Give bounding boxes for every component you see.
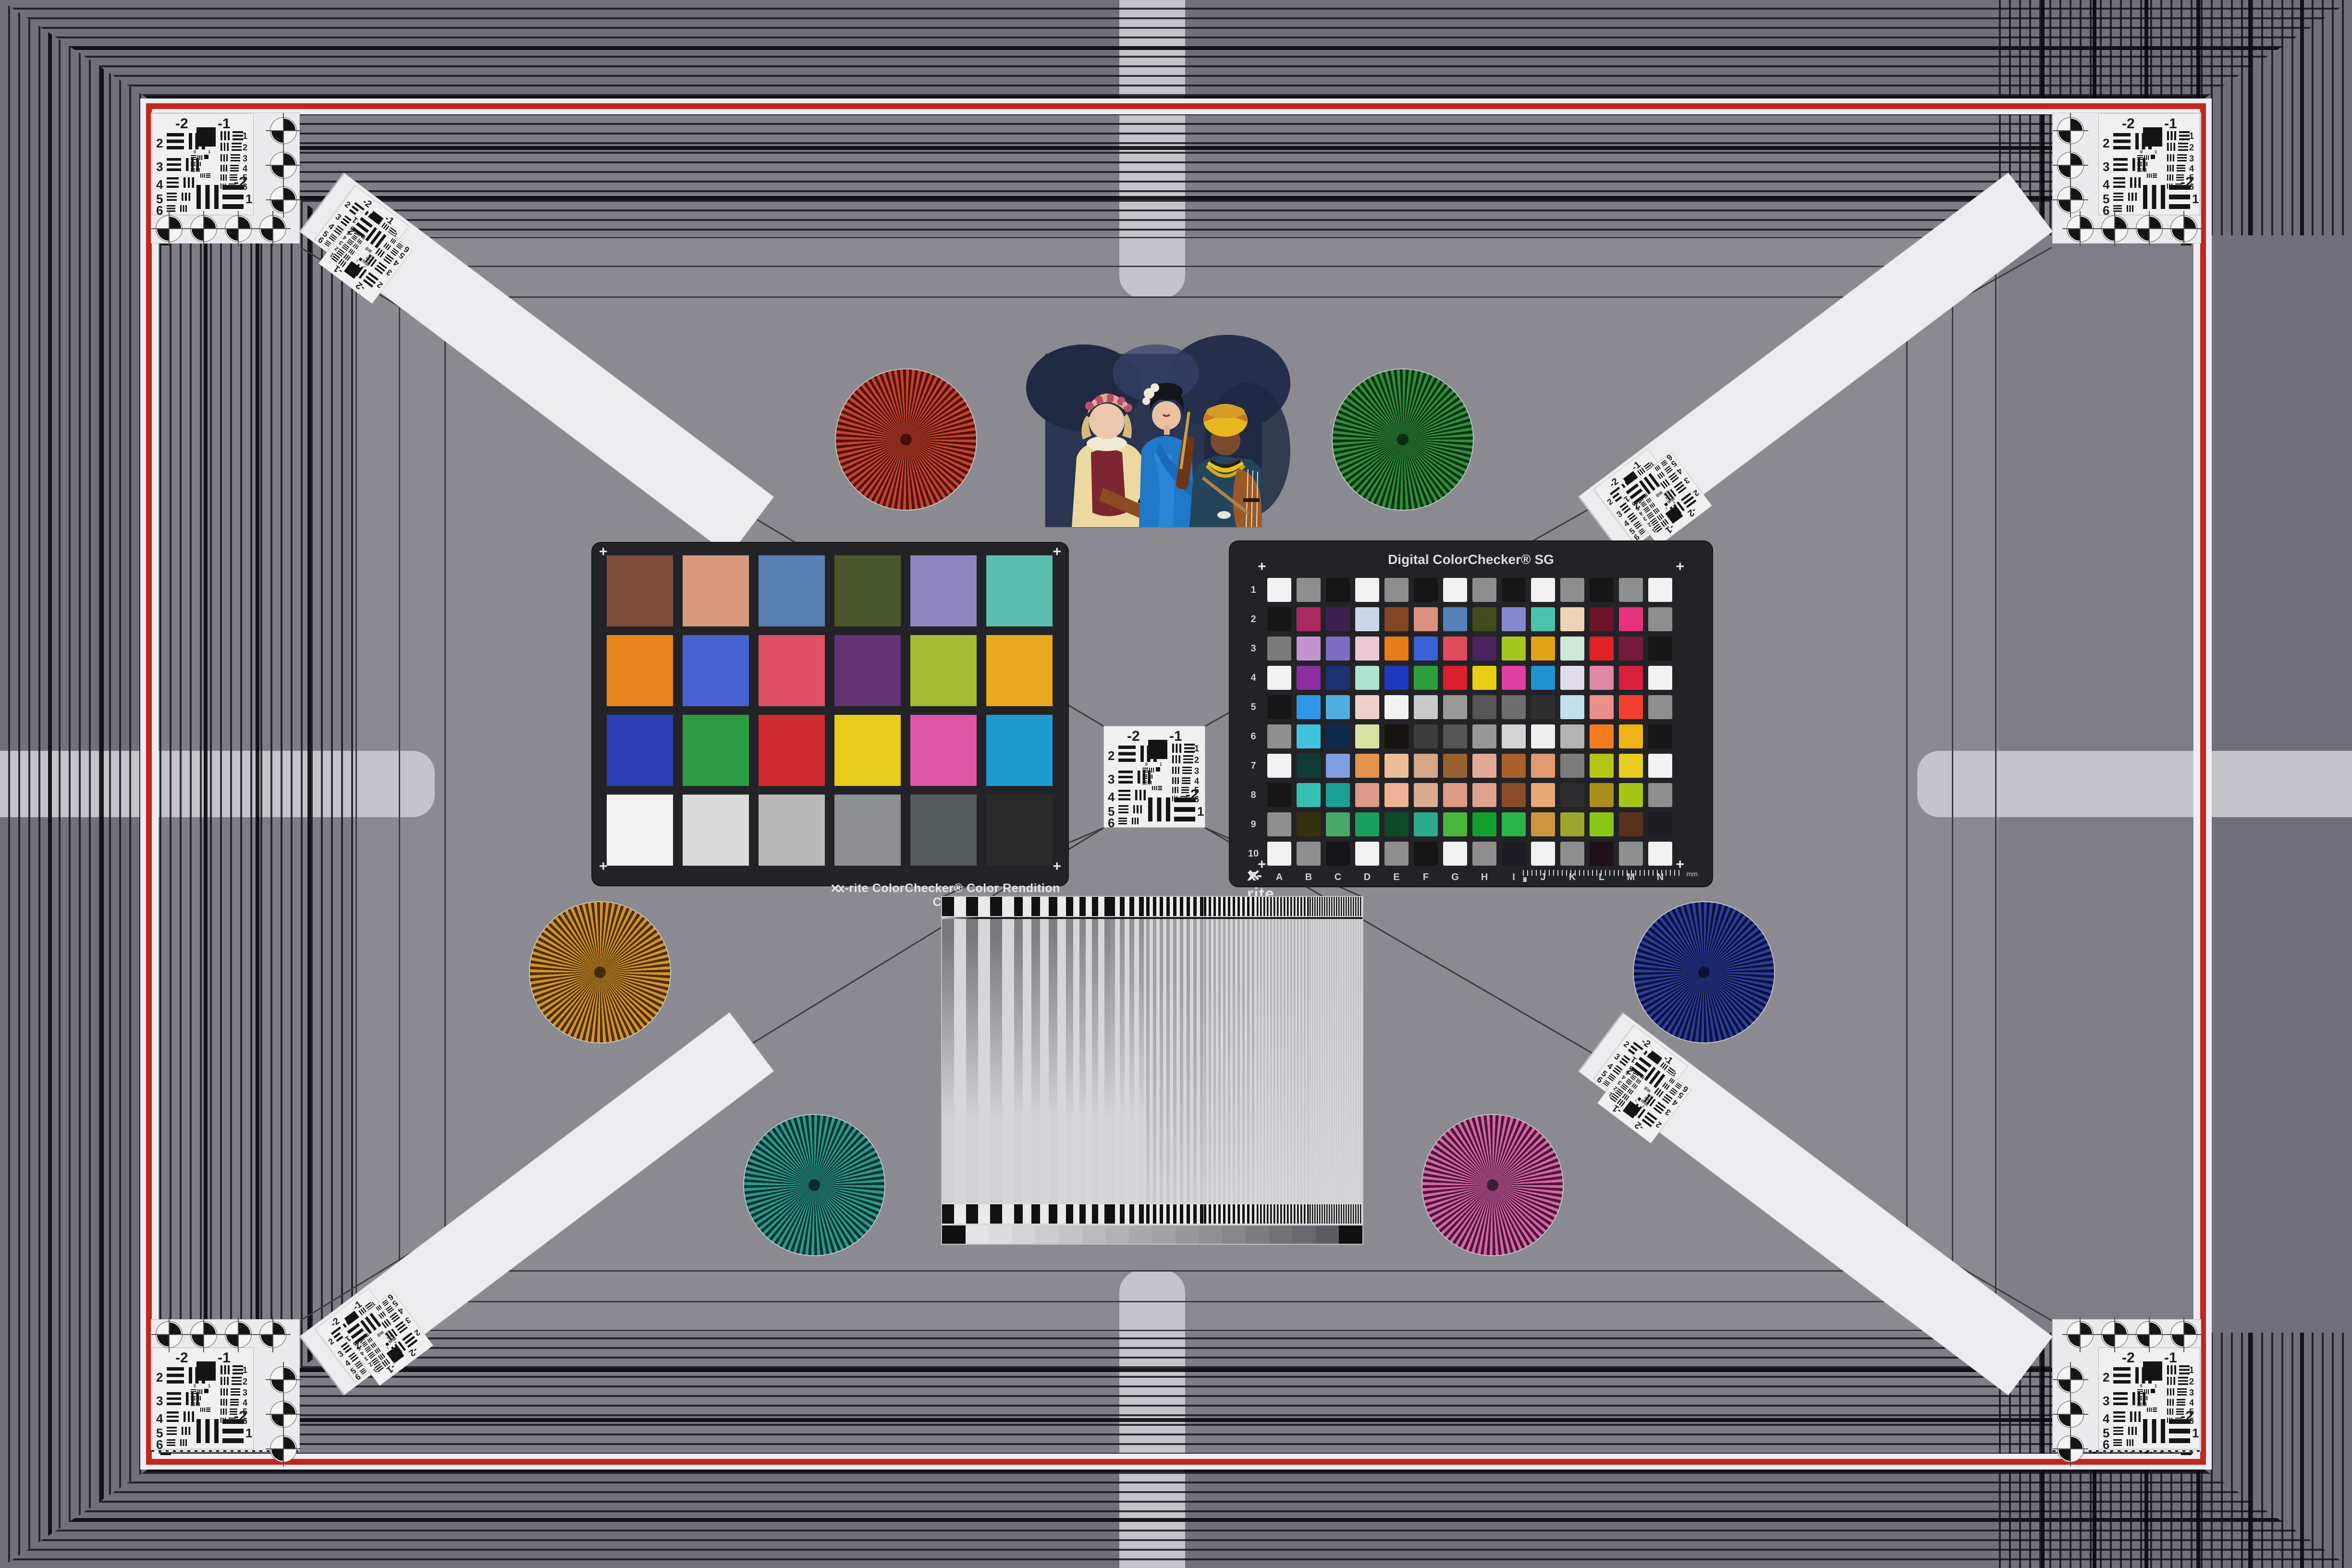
registration-cross: + — [1053, 550, 1061, 554]
sg-ruler-unit: mm — [1687, 870, 1698, 878]
bar-group — [196, 1396, 201, 1400]
bar-group — [2167, 1377, 2175, 1385]
quarter-circle-mark — [2058, 1368, 2082, 1392]
target-number: -2 — [175, 1350, 188, 1366]
bar-group — [1660, 479, 1670, 489]
target-number: -2 — [2122, 116, 2135, 132]
grayscale-step — [1269, 1225, 1293, 1244]
bar-group — [2177, 154, 2186, 161]
bar-group — [1133, 805, 1141, 813]
quarter-circle-mark — [271, 1368, 295, 1392]
color-patch — [986, 555, 1053, 626]
quarter-circle-mark — [271, 119, 295, 143]
color-patch — [1472, 842, 1496, 866]
target-number: 6 — [2103, 1437, 2109, 1452]
bar-group — [206, 173, 210, 178]
sg-ruler-number: 6 — [1523, 876, 1527, 884]
bar-group — [2127, 205, 2133, 212]
color-patch — [1648, 783, 1672, 807]
bar-group — [1653, 508, 1660, 514]
target-number: 4 — [1194, 776, 1199, 786]
bar-group — [196, 162, 201, 166]
color-patch — [834, 715, 901, 786]
quarter-circle-mark — [226, 217, 250, 241]
color-patch — [986, 715, 1053, 786]
color-patch — [1414, 724, 1438, 748]
color-patch — [759, 795, 825, 866]
bar-group — [2167, 165, 2174, 171]
registration-cross: + — [599, 550, 608, 554]
color-patch — [1267, 637, 1291, 661]
bar-group — [191, 162, 196, 166]
color-patch — [986, 635, 1053, 706]
color-patch — [1355, 578, 1379, 602]
color-patch — [1384, 842, 1409, 866]
target-number: 2 — [2103, 1370, 2109, 1385]
bar-group — [1118, 746, 1136, 762]
target-number: -2 — [2180, 174, 2193, 191]
bar-group — [197, 155, 202, 160]
frequency-bar-segment — [1204, 1204, 1257, 1224]
color-patch — [1326, 842, 1350, 866]
color-patch — [1355, 842, 1379, 866]
bar-group — [1135, 790, 1146, 800]
color-patch — [1443, 666, 1467, 690]
target-number: 0 — [194, 149, 196, 154]
bar-group — [1662, 1094, 1673, 1104]
target-number: 0 — [194, 1384, 196, 1388]
color-patch — [759, 635, 825, 706]
siemens-star-green — [1333, 369, 1473, 510]
color-patch — [834, 635, 901, 706]
target-number: 2 — [1108, 748, 1115, 763]
bar-group — [191, 1402, 195, 1406]
bar-group — [184, 1411, 194, 1422]
target-number: 4 — [2189, 1398, 2194, 1408]
color-patch — [1590, 637, 1614, 661]
quarter-circle-mark — [271, 188, 295, 212]
grayscale-step — [1316, 1225, 1339, 1244]
bar-group — [1620, 1083, 1628, 1091]
target-number: -1 — [2164, 1350, 2177, 1366]
target-number: -2 — [234, 1409, 247, 1425]
color-patch — [1384, 783, 1409, 807]
color-patch — [1355, 812, 1379, 836]
color-patch — [1502, 754, 1526, 778]
bar-group — [2113, 1367, 2131, 1384]
bar-group — [378, 1353, 386, 1360]
target-number: 1 — [243, 1365, 247, 1375]
bar-group — [1148, 797, 1170, 821]
test-chart-scene: -2-123456123456-2101-2-123456123456-2101… — [0, 0, 2352, 1568]
color-patch — [1384, 812, 1409, 836]
color-patch — [910, 795, 977, 866]
bar-group — [1661, 460, 1668, 467]
sg-row-label: 8 — [1246, 790, 1261, 801]
target-number: -1 — [1169, 728, 1182, 745]
color-patch — [1472, 812, 1496, 836]
bar-group — [167, 1411, 179, 1422]
bar-group — [1152, 786, 1157, 790]
color-patch — [1355, 724, 1379, 748]
target-number: 3 — [2189, 1388, 2194, 1398]
target-number: 4 — [1108, 790, 1115, 805]
bar-group — [2113, 1392, 2128, 1405]
bar-group — [390, 238, 396, 244]
color-patch — [1590, 812, 1614, 836]
siemens-star-orange — [530, 902, 670, 1042]
color-patch — [1502, 637, 1526, 661]
bar-group — [2143, 168, 2146, 172]
target-number: 6 — [2103, 203, 2109, 218]
color-patch — [1443, 578, 1467, 602]
color-patch — [1648, 724, 1672, 748]
color-patch — [1267, 724, 1291, 748]
bar-group — [1132, 818, 1139, 824]
target-number: 3 — [243, 154, 247, 164]
bar-group — [220, 154, 228, 161]
corner-usaf-slot: -2-123456123456-2101 — [152, 114, 253, 215]
target-number: -2 — [1186, 787, 1199, 803]
color-patch — [1502, 783, 1526, 807]
bar-group — [1172, 767, 1179, 774]
black-square — [2151, 155, 2155, 159]
color-patch — [1590, 842, 1614, 866]
bar-group — [2130, 177, 2141, 188]
bar-group — [1118, 771, 1133, 784]
target-number: 4 — [2103, 177, 2109, 192]
bar-group — [2153, 1408, 2157, 1412]
bar-group — [374, 1347, 381, 1354]
grayscale-step — [1082, 1225, 1106, 1244]
bar-group — [381, 1319, 391, 1328]
bar-group — [367, 1337, 373, 1343]
quarter-circle-mark — [2103, 217, 2127, 241]
target-number: 2 — [243, 143, 247, 153]
color-patch — [1531, 754, 1555, 778]
color-patch — [1560, 695, 1584, 719]
quarter-circle-mark — [271, 153, 295, 177]
color-patch — [1414, 695, 1438, 719]
color-patch — [1355, 695, 1379, 719]
color-patch — [1619, 783, 1643, 807]
color-patch — [910, 635, 977, 706]
bar-group — [368, 249, 372, 253]
black-square — [196, 127, 216, 147]
target-number: 4 — [2103, 1411, 2109, 1426]
quarter-circle-mark — [2137, 217, 2161, 241]
sg-col-label: B — [1297, 872, 1321, 883]
bar-group — [197, 1389, 202, 1394]
target-number: 2 — [2189, 1377, 2194, 1387]
color-patch — [1648, 754, 1672, 778]
target-number: 1 — [243, 131, 247, 141]
color-patch — [1590, 724, 1614, 748]
grayscale-step — [966, 1225, 989, 1244]
target-number: 2 — [156, 136, 163, 151]
target-number: 3 — [2103, 1394, 2109, 1409]
registration-cross: + — [1258, 862, 1266, 867]
color-patch — [1619, 842, 1643, 866]
frequency-bar-segment — [1146, 1204, 1204, 1224]
color-patch — [986, 795, 1053, 866]
target-number: 1 — [2192, 192, 2199, 207]
bar-group — [1627, 1088, 1634, 1095]
color-patch — [1297, 783, 1321, 807]
bar-group — [191, 1396, 196, 1400]
corner-usaf-slot: -2-123456123456-2101 — [2099, 114, 2200, 215]
target-number: -2 — [2180, 1409, 2193, 1425]
bar-group — [383, 243, 391, 250]
frequency-bar-segment — [1067, 1204, 1110, 1224]
bar-group — [379, 1311, 386, 1319]
bar-group — [365, 1346, 372, 1353]
bar-group — [1657, 513, 1665, 521]
grayscale-step — [1222, 1225, 1246, 1244]
target-number: -2 — [1127, 728, 1140, 745]
bar-group — [182, 193, 190, 201]
bar-group — [2167, 1365, 2176, 1374]
target-number: 1 — [2192, 1426, 2199, 1441]
color-patch — [1472, 578, 1496, 602]
black-square — [1637, 1097, 1641, 1101]
color-patch — [1297, 695, 1321, 719]
bar-group — [1681, 492, 1696, 508]
bar-group — [2167, 1399, 2174, 1406]
bar-group — [233, 1365, 244, 1374]
color-patch — [1531, 783, 1555, 807]
target-number: 1 — [2189, 131, 2194, 141]
bar-group — [182, 1427, 190, 1435]
color-patch — [1414, 842, 1438, 866]
bar-group — [220, 1365, 230, 1374]
bar-group — [1654, 465, 1661, 471]
bar-group — [1653, 1102, 1666, 1114]
black-square — [1148, 740, 1167, 759]
color-patch — [683, 555, 749, 626]
siemens-star-blue — [1634, 902, 1774, 1042]
target-number: 1 — [1665, 506, 1668, 510]
bar-group — [1646, 498, 1652, 503]
target-number: 1 — [2155, 149, 2157, 154]
bar-group — [1158, 786, 1162, 790]
bar-group — [2177, 165, 2185, 171]
quarter-circle-mark — [192, 217, 216, 241]
bar-group — [1657, 471, 1665, 479]
bar-group — [191, 168, 195, 172]
target-number: 6 — [1108, 816, 1115, 831]
bar-group — [2147, 173, 2152, 178]
color-patch — [607, 795, 673, 866]
target-number: 0 — [2140, 1384, 2143, 1388]
color-patch — [1414, 637, 1438, 661]
color-patch — [1472, 666, 1496, 690]
color-patch — [1297, 637, 1321, 661]
bar-group — [2137, 1402, 2142, 1406]
grayscale-step — [1012, 1225, 1036, 1244]
target-number: 1 — [208, 1384, 210, 1388]
quarter-circle-mark — [2058, 1402, 2082, 1426]
black-square — [2143, 127, 2162, 147]
bar-group — [200, 1408, 205, 1412]
grayscale-step — [1339, 1225, 1362, 1244]
color-patch — [1502, 607, 1526, 631]
registration-cross: + — [1676, 564, 1684, 569]
color-patch — [1560, 724, 1584, 748]
bar-group — [1622, 1093, 1629, 1101]
target-number: 2 — [243, 1377, 247, 1387]
bar-group — [231, 1388, 240, 1396]
color-patch — [1560, 754, 1584, 778]
bar-group — [167, 1427, 177, 1435]
color-patch — [1267, 812, 1291, 836]
bar-group — [220, 143, 229, 151]
target-number: 4 — [156, 1411, 163, 1426]
bar-group — [2113, 133, 2131, 149]
color-patch — [1648, 812, 1672, 836]
bar-group — [2113, 177, 2125, 188]
bar-group — [343, 254, 351, 261]
corner-panel: -2-123456123456-2101 — [2053, 1320, 2201, 1450]
color-patch — [1648, 607, 1672, 631]
bar-group — [220, 165, 227, 171]
target-number: 0 — [2140, 149, 2143, 154]
target-number: 2 — [2189, 143, 2194, 153]
color-patch — [1648, 695, 1672, 719]
color-patch — [1297, 754, 1321, 778]
bar-group — [353, 243, 359, 249]
bar-group — [1172, 787, 1178, 793]
color-patch — [1619, 666, 1643, 690]
bar-group — [1647, 1089, 1651, 1093]
bar-group — [220, 174, 227, 181]
target-number: 1 — [1160, 762, 1162, 767]
bar-group — [1118, 805, 1128, 813]
target-number: 4 — [243, 1398, 247, 1408]
bar-group — [2177, 1388, 2186, 1396]
center-resolution-target: -2-123456123456-2101 — [1104, 726, 1205, 828]
bar-group — [2143, 185, 2165, 209]
color-patch — [1502, 842, 1526, 866]
grayscale-step — [1246, 1225, 1269, 1244]
target-number: 2 — [2103, 136, 2109, 151]
sg-row-label: 7 — [1246, 760, 1261, 772]
bar-group — [2167, 131, 2176, 140]
color-patch — [1502, 812, 1526, 836]
bar-group — [1646, 512, 1654, 519]
color-patch — [1590, 607, 1614, 631]
bar-group — [2177, 1399, 2185, 1406]
grayscale-step — [1129, 1225, 1152, 1244]
bar-group — [1142, 774, 1147, 779]
color-patch — [1531, 842, 1555, 866]
color-patch — [1326, 754, 1350, 778]
sg-col-label: I — [1502, 872, 1526, 883]
bar-group — [2167, 143, 2175, 151]
bar-group — [167, 1439, 175, 1446]
bar-group — [2113, 158, 2128, 171]
bar-group — [1142, 781, 1147, 784]
grayscale-step-wedge — [942, 1225, 1362, 1244]
sg-row-label: 6 — [1246, 731, 1261, 742]
frequency-bar-segment — [1257, 897, 1310, 916]
corner-usaf-slot: -2-123456123456-2101 — [152, 1348, 253, 1449]
color-patch — [1443, 607, 1467, 631]
bar-group — [1172, 777, 1179, 784]
bar-group — [2137, 1389, 2143, 1394]
frequency-bar-segment — [1310, 897, 1362, 916]
target-number: -2 — [2122, 1350, 2135, 1366]
bar-group — [167, 205, 175, 212]
usaf-resolution-target: -2-123456123456-2101 — [2099, 114, 2200, 215]
bar-group — [1148, 781, 1151, 784]
bar-group — [1184, 744, 1195, 753]
frequency-bar-segment — [1310, 1204, 1362, 1224]
sg-col-label: D — [1355, 872, 1379, 883]
color-patch — [1443, 637, 1467, 661]
bar-group — [2143, 162, 2147, 166]
grayscale-step — [942, 1225, 966, 1244]
bar-group — [1118, 790, 1130, 800]
bar-group — [1172, 755, 1180, 763]
color-patch — [1414, 812, 1438, 836]
bar-group — [2113, 1411, 2125, 1422]
bar-group — [220, 131, 230, 140]
color-patch — [607, 715, 673, 786]
color-patch — [1472, 607, 1496, 631]
target-number: 0 — [1642, 1104, 1645, 1108]
color-patch — [910, 715, 977, 786]
bar-group — [2113, 193, 2123, 201]
target-number: 1 — [2155, 1384, 2157, 1388]
target-number: 1 — [245, 1426, 252, 1441]
bar-group — [1182, 767, 1191, 774]
bar-group — [402, 1332, 417, 1347]
quarter-circle-mark — [261, 1323, 285, 1347]
color-patch — [1443, 783, 1467, 807]
bar-group — [220, 1399, 227, 1406]
target-number: -1 — [218, 116, 231, 132]
siemens-star-pink — [1422, 1115, 1563, 1255]
black-square — [1664, 502, 1668, 506]
corner-usaf-slot: -2-123456123456-2101 — [2099, 1348, 2200, 1449]
quarter-circle-mark — [261, 217, 285, 241]
color-patch — [1384, 637, 1409, 661]
usaf-resolution-target: -2-123456123456-2101 — [2099, 1348, 2200, 1449]
bar-group — [1669, 1088, 1678, 1096]
bar-group — [2113, 1427, 2123, 1435]
color-patch — [683, 715, 749, 786]
colorchecker-sg-grid — [1267, 578, 1672, 866]
sg-row-label: 1 — [1246, 585, 1261, 596]
color-patch — [1297, 842, 1321, 866]
quarter-circle-mark — [2058, 119, 2082, 143]
bar-group — [1664, 465, 1673, 474]
bar-group — [2137, 1396, 2142, 1400]
bar-group — [395, 1321, 408, 1334]
target-number: 3 — [156, 1394, 163, 1409]
color-patch — [1560, 842, 1584, 866]
bar-group — [167, 158, 181, 171]
corner-panel: -2-123456123456-2101 — [151, 1320, 299, 1450]
usaf-resolution-target: -2-123456123456-2101 — [152, 1348, 253, 1449]
frequency-bar-segment — [1014, 897, 1067, 916]
target-number: 0 — [1145, 762, 1148, 767]
color-patch — [1560, 607, 1584, 631]
bar-group — [2128, 193, 2136, 201]
quarter-circle-mark — [2103, 1323, 2127, 1347]
color-patch — [1384, 754, 1409, 778]
